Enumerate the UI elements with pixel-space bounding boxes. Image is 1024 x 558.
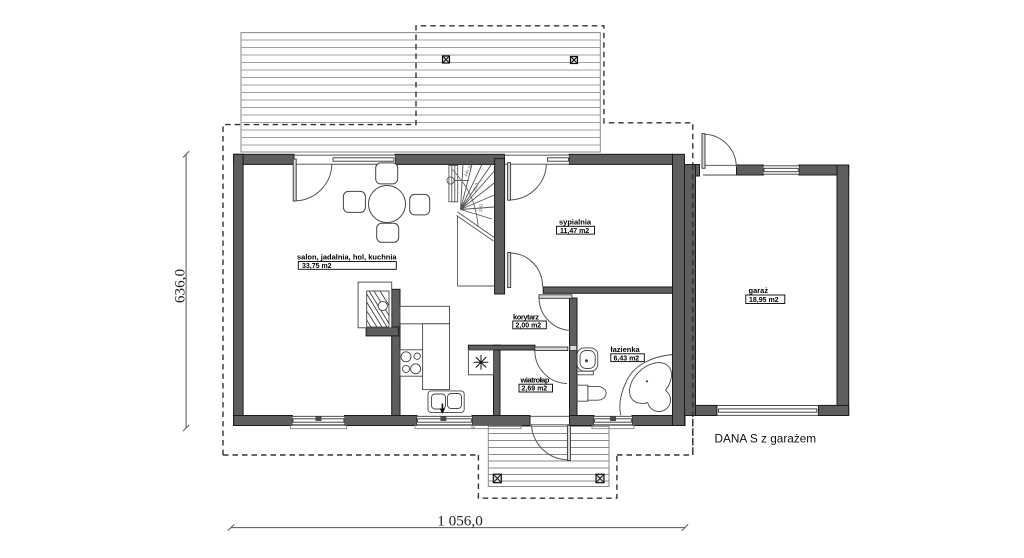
svg-text:18,95 m2: 18,95 m2 — [749, 297, 779, 304]
svg-text:łazienka: łazienka — [611, 345, 641, 354]
svg-text:636,0: 636,0 — [172, 269, 189, 304]
svg-text:wiatrołap: wiatrołap — [520, 376, 550, 385]
svg-text:240: 240 — [478, 204, 484, 213]
svg-text:2,69 m2: 2,69 m2 — [522, 386, 548, 393]
svg-text:2,00 m2: 2,00 m2 — [516, 323, 542, 330]
svg-text:6,43 m2: 6,43 m2 — [614, 355, 640, 362]
svg-text:11,47 m2: 11,47 m2 — [560, 228, 589, 235]
svg-text:salon, jadalnia, hol, kuchnia: salon, jadalnia, hol, kuchnia — [297, 253, 397, 262]
svg-text:1 056,0: 1 056,0 — [437, 513, 483, 530]
svg-text:DANA S z garażem: DANA S z garażem — [715, 432, 817, 446]
svg-text:sypialnia: sypialnia — [559, 218, 592, 227]
svg-text:garaż: garaż — [749, 286, 769, 295]
svg-text:korytarz: korytarz — [513, 313, 539, 322]
svg-text:33,75 m2: 33,75 m2 — [302, 263, 332, 270]
